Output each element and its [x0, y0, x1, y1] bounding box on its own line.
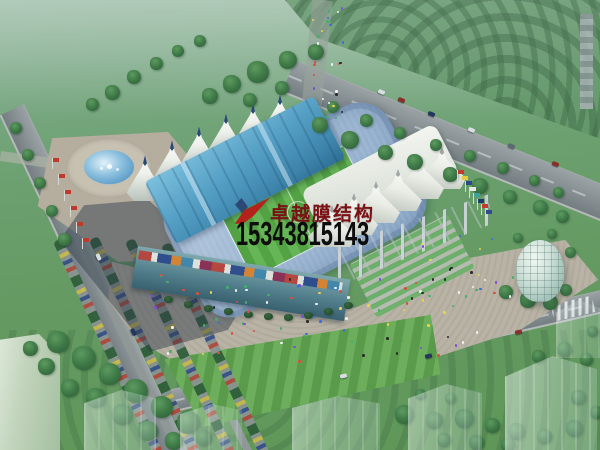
- person: [169, 350, 172, 353]
- hedge: [324, 308, 333, 315]
- person: [378, 309, 381, 312]
- person: [495, 281, 498, 284]
- roadside-structure: [580, 14, 593, 109]
- tree: [86, 98, 99, 111]
- person: [245, 289, 248, 292]
- person: [351, 340, 354, 343]
- flag: [477, 199, 478, 210]
- flag-cloth: [482, 204, 488, 208]
- hedge: [264, 313, 273, 320]
- tree: [61, 379, 79, 397]
- tree: [243, 93, 257, 107]
- tree: [279, 51, 297, 69]
- person: [245, 301, 248, 304]
- tree: [38, 358, 55, 375]
- person: [150, 295, 153, 298]
- tree: [513, 233, 523, 243]
- person: [313, 87, 316, 90]
- flag-red: [52, 158, 53, 169]
- person: [171, 326, 174, 329]
- flag-cloth: [65, 190, 71, 194]
- tree: [430, 139, 442, 151]
- person: [462, 341, 465, 344]
- person: [318, 292, 321, 295]
- aerial-rendering: 卓越膜结构 15343815143: [0, 0, 600, 450]
- flag: [469, 187, 470, 198]
- tree: [547, 229, 557, 239]
- person: [290, 297, 293, 300]
- person: [470, 271, 473, 274]
- person: [293, 346, 296, 349]
- tree: [565, 247, 576, 258]
- person: [319, 320, 322, 323]
- glass-dome-pavilion: [516, 240, 564, 302]
- person: [328, 10, 331, 13]
- flag-cloth: [458, 170, 464, 174]
- flag-red: [82, 238, 83, 249]
- person: [182, 289, 185, 292]
- person: [476, 331, 479, 334]
- person: [210, 291, 213, 294]
- person: [427, 324, 430, 327]
- person: [301, 315, 304, 318]
- person: [247, 310, 250, 313]
- person: [329, 24, 332, 27]
- person: [387, 323, 390, 326]
- tree: [472, 178, 488, 194]
- flag-cloth: [71, 206, 77, 210]
- person: [342, 41, 345, 44]
- person: [479, 248, 482, 251]
- tree: [360, 114, 373, 127]
- person: [404, 287, 407, 290]
- person: [421, 292, 424, 295]
- person: [437, 354, 440, 357]
- person: [396, 352, 399, 355]
- flag-cloth: [474, 193, 480, 197]
- hedge: [344, 302, 353, 309]
- tree: [275, 81, 289, 95]
- tree: [308, 44, 324, 60]
- tree: [407, 154, 423, 170]
- flag: [461, 176, 462, 187]
- hedge: [184, 301, 193, 308]
- watermark-phone-number: 15343815143: [236, 215, 369, 253]
- flag-cloth: [478, 199, 484, 203]
- flag-red: [76, 222, 77, 233]
- person: [429, 259, 432, 262]
- hedge: [304, 312, 313, 319]
- person: [509, 295, 512, 298]
- tree: [202, 88, 218, 104]
- tree: [172, 45, 184, 57]
- tree: [503, 190, 517, 204]
- tree: [497, 162, 509, 174]
- person: [306, 320, 309, 323]
- tree: [22, 149, 34, 161]
- hedge: [204, 305, 213, 312]
- person: [341, 7, 344, 10]
- tree: [223, 75, 241, 93]
- person: [386, 337, 389, 340]
- person: [345, 317, 348, 320]
- tree: [10, 122, 22, 134]
- flag-cloth: [462, 176, 468, 180]
- person: [215, 318, 218, 321]
- tree: [341, 131, 359, 149]
- tree: [485, 418, 500, 433]
- person: [317, 42, 320, 45]
- person: [226, 286, 229, 289]
- person: [339, 290, 342, 293]
- flag: [465, 181, 466, 192]
- tree: [533, 200, 548, 215]
- person: [297, 285, 300, 288]
- person: [444, 278, 447, 281]
- tree: [394, 127, 406, 139]
- flag-red: [70, 206, 71, 217]
- hedge: [284, 314, 293, 321]
- tree: [247, 61, 269, 83]
- tree: [34, 177, 46, 189]
- tree: [72, 346, 96, 370]
- person: [428, 295, 431, 298]
- person: [332, 105, 335, 108]
- tree: [58, 233, 71, 246]
- person: [479, 288, 482, 291]
- person: [491, 238, 494, 241]
- watermark: 卓越膜结构 15343815143: [232, 193, 462, 255]
- person: [243, 323, 246, 326]
- tree: [443, 167, 458, 182]
- tree: [556, 210, 569, 223]
- flag: [457, 170, 458, 181]
- person: [458, 291, 461, 294]
- person: [362, 354, 365, 357]
- person: [196, 292, 199, 295]
- tree: [47, 331, 69, 353]
- tree: [529, 175, 540, 186]
- person: [235, 289, 238, 292]
- flag: [481, 204, 482, 215]
- person: [367, 304, 370, 307]
- person: [478, 274, 481, 277]
- fountain-water: [84, 150, 134, 184]
- tree: [46, 205, 58, 217]
- person: [339, 307, 342, 310]
- flag-cloth: [83, 238, 89, 242]
- person: [450, 267, 453, 270]
- person: [317, 35, 320, 38]
- tree: [150, 57, 163, 70]
- hedge: [164, 296, 173, 303]
- person: [406, 302, 409, 305]
- person: [154, 306, 157, 309]
- person: [331, 63, 334, 66]
- tree: [312, 117, 328, 133]
- flag-cloth: [470, 187, 476, 191]
- flag: [473, 193, 474, 204]
- flag-cloth: [53, 158, 59, 162]
- person: [244, 285, 247, 288]
- tree: [194, 35, 206, 47]
- tree: [127, 70, 141, 84]
- person: [335, 93, 338, 96]
- person: [443, 311, 446, 314]
- tree: [105, 85, 120, 100]
- tree: [378, 145, 393, 160]
- person: [298, 360, 301, 363]
- flag-cloth: [59, 174, 65, 178]
- tree: [553, 187, 564, 198]
- tree: [99, 363, 121, 385]
- flag: [485, 210, 486, 221]
- person: [512, 276, 515, 279]
- flag-cloth: [466, 181, 472, 185]
- tree: [23, 341, 38, 356]
- tree: [464, 150, 476, 162]
- flag-red: [64, 190, 65, 201]
- flag-cloth: [77, 222, 83, 226]
- person: [315, 303, 318, 306]
- flag-cloth: [486, 210, 492, 214]
- flag-red: [58, 174, 59, 185]
- person: [305, 333, 308, 336]
- person: [326, 20, 329, 23]
- person: [347, 296, 350, 299]
- person: [213, 306, 216, 309]
- hedge: [224, 308, 233, 315]
